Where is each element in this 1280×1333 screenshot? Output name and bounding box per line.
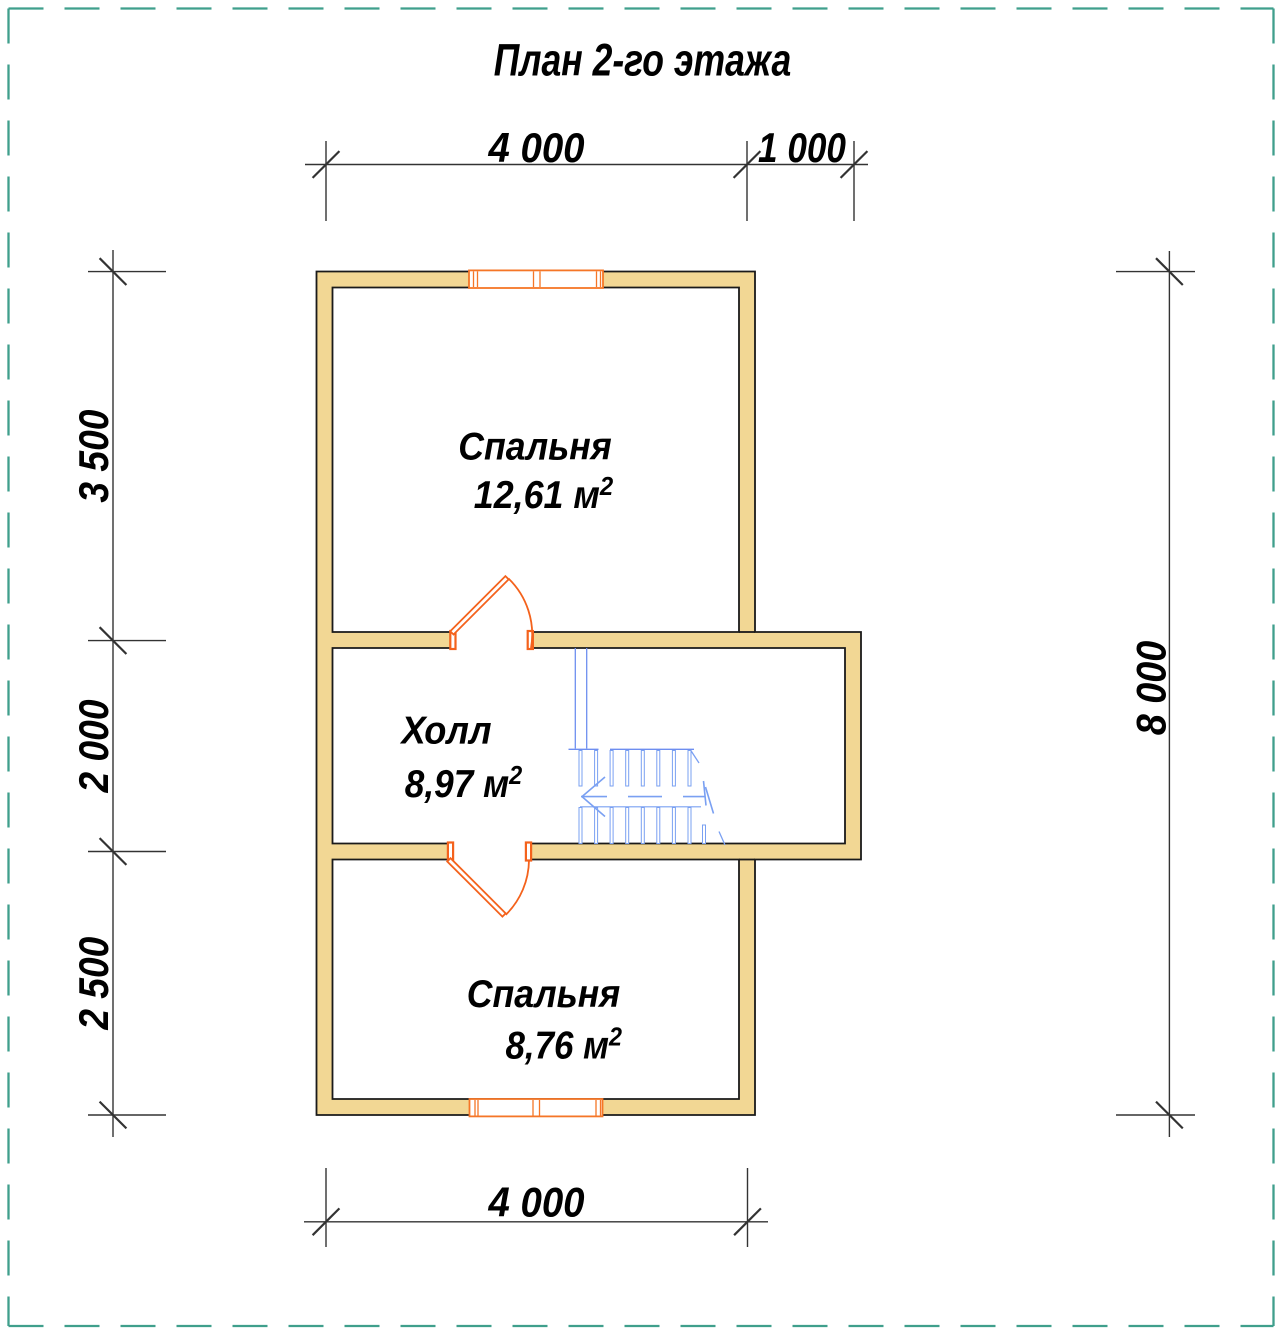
svg-text:2 000: 2 000 — [71, 700, 118, 794]
svg-text:Спальня: Спальня — [467, 971, 620, 1015]
svg-text:Спальня: Спальня — [458, 424, 611, 468]
svg-text:4 000: 4 000 — [488, 1179, 585, 1226]
svg-text:8 000: 8 000 — [1129, 641, 1175, 736]
svg-text:8,97 м2: 8,97 м2 — [405, 761, 523, 805]
svg-text:3 500: 3 500 — [71, 410, 118, 503]
svg-text:8,76 м2: 8,76 м2 — [505, 1023, 622, 1067]
svg-text:План 2-го этажа: План 2-го этажа — [494, 35, 791, 86]
svg-text:12,61 м2: 12,61 м2 — [474, 472, 614, 516]
svg-text:2 500: 2 500 — [71, 937, 118, 1031]
svg-text:4 000: 4 000 — [488, 124, 585, 171]
svg-text:Холл: Холл — [400, 708, 492, 751]
svg-text:1 000: 1 000 — [758, 125, 846, 172]
